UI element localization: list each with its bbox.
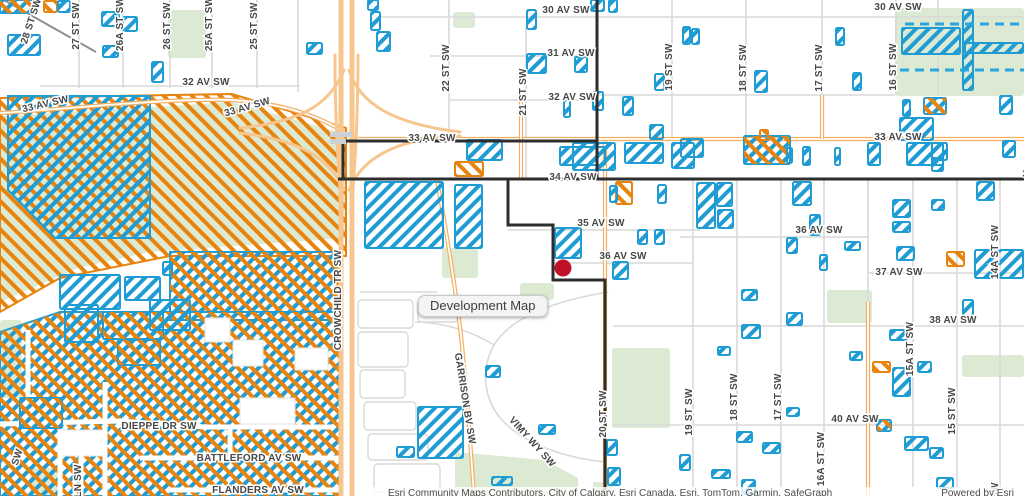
street-label: 20 ST SW <box>598 390 609 438</box>
development-parcel[interactable] <box>820 255 827 270</box>
development-parcel[interactable] <box>573 143 615 170</box>
street-label: 26A ST SW <box>115 0 126 51</box>
development-parcel[interactable] <box>650 125 663 139</box>
street-label: 32 AV SW <box>548 92 596 103</box>
street-label: 31 AV SW <box>547 48 595 59</box>
development-parcel-overlay <box>877 420 891 431</box>
development-parcel[interactable] <box>902 28 960 54</box>
development-parcel[interactable] <box>712 470 730 478</box>
development-parcel[interactable] <box>718 210 733 228</box>
development-parcel[interactable] <box>486 366 500 377</box>
street-label: 30 AV SW <box>542 5 590 16</box>
park <box>827 290 872 323</box>
development-parcel[interactable] <box>65 305 98 342</box>
street-label: 19 ST SW <box>684 388 695 436</box>
street-label: 25 ST SW <box>249 2 260 50</box>
lot-outline <box>360 370 405 398</box>
development-parcel[interactable] <box>371 12 380 30</box>
street-label: 38 AV SW <box>929 315 977 326</box>
development-parcel[interactable] <box>377 32 390 51</box>
development-parcel[interactable] <box>947 252 964 266</box>
development-parcel[interactable] <box>845 242 860 250</box>
lot-outline <box>364 402 416 430</box>
street-label: 18 ST SW <box>729 373 740 421</box>
development-parcel[interactable] <box>836 28 844 45</box>
development-parcel[interactable] <box>658 185 666 203</box>
development-parcel[interactable] <box>150 300 190 330</box>
street-label: 36 AV SW <box>795 225 843 236</box>
development-parcel[interactable] <box>163 262 172 275</box>
development-parcel[interactable] <box>742 325 760 338</box>
development-parcel[interactable] <box>608 468 620 485</box>
development-parcel[interactable] <box>697 183 715 228</box>
street-label: 27 ST SW <box>71 2 82 50</box>
street-label: 15 ST SW <box>947 387 958 435</box>
development-parcel[interactable] <box>718 347 730 355</box>
development-parcel[interactable] <box>903 100 910 116</box>
development-parcel[interactable] <box>44 1 57 12</box>
development-parcel[interactable] <box>787 313 802 325</box>
development-parcel[interactable] <box>787 238 797 253</box>
development-parcel[interactable] <box>638 230 647 244</box>
development-parcel[interactable] <box>1003 141 1015 157</box>
development-parcel[interactable] <box>905 437 928 450</box>
street-label: 15A ST SW <box>905 322 916 377</box>
street-label: 33 AV SW <box>874 132 922 143</box>
development-parcel[interactable] <box>467 140 502 160</box>
development-parcel[interactable] <box>683 27 690 44</box>
development-parcel[interactable] <box>625 143 663 163</box>
park <box>168 10 206 58</box>
street-label: LN SW <box>73 464 84 496</box>
street-label: 14A ST SW <box>990 225 1001 280</box>
street-label: 30 AV SW <box>874 2 922 13</box>
development-parcel[interactable] <box>1000 96 1012 114</box>
development-parcel[interactable] <box>692 29 699 44</box>
attribution-bar: Esri Community Maps Contributors, City o… <box>356 487 1024 496</box>
development-parcel[interactable] <box>555 228 581 258</box>
street-label: 32 AV SW <box>182 77 230 88</box>
development-parcel[interactable] <box>365 182 443 248</box>
lot-outline <box>358 300 413 328</box>
development-parcel[interactable] <box>868 143 880 165</box>
street-label: 17 ST SW <box>773 373 784 421</box>
development-region <box>170 252 342 320</box>
development-parcel[interactable] <box>850 352 862 360</box>
development-parcel[interactable] <box>455 162 483 176</box>
highway-label-placeholder <box>330 139 346 144</box>
park <box>962 355 1024 377</box>
vacant-lot <box>295 348 328 370</box>
development-parcel[interactable] <box>787 148 792 163</box>
map-canvas[interactable]: 30 AV SW30 AV SW31 AV SW32 AV SW32 AV SW… <box>0 0 1024 496</box>
development-parcel[interactable] <box>760 130 768 140</box>
street-label: 34 AV SW <box>549 172 597 183</box>
street-label: CROWCHILD TR SW <box>333 250 344 351</box>
vacant-lot <box>233 340 263 366</box>
street-label: 19 ST SW <box>664 43 675 91</box>
highway-label-placeholder <box>330 132 352 137</box>
development-parcel-overlay <box>924 98 946 114</box>
development-parcel[interactable] <box>152 62 163 82</box>
development-parcel[interactable] <box>125 277 160 300</box>
street-label: 18 ST SW <box>738 44 749 92</box>
map-viewport[interactable]: 30 AV SW30 AV SW31 AV SW32 AV SW32 AV SW… <box>0 0 1024 496</box>
development-parcel[interactable] <box>368 0 378 10</box>
development-parcel[interactable] <box>873 362 890 372</box>
development-map-tooltip: Development Map <box>418 295 548 317</box>
park <box>612 348 670 428</box>
street-label: 16A ST SW <box>816 432 827 487</box>
lot-outline <box>358 332 408 367</box>
attribution-text: Esri Community Maps Contributors, City o… <box>388 487 832 496</box>
development-regions[interactable] <box>0 94 346 496</box>
development-parcel[interactable] <box>455 185 482 248</box>
development-parcel[interactable] <box>527 10 536 29</box>
development-parcel[interactable] <box>539 425 555 434</box>
development-parcel[interactable] <box>918 362 931 372</box>
street-label: 26 ST SW <box>162 2 173 50</box>
local-road <box>415 322 494 345</box>
development-parcel[interactable] <box>717 183 732 206</box>
location-marker-icon[interactable] <box>555 260 572 277</box>
development-parcel[interactable] <box>853 73 861 90</box>
development-parcel[interactable] <box>609 0 617 12</box>
street-label: 33 AV SW <box>408 133 456 144</box>
development-parcel[interactable] <box>397 447 414 457</box>
development-parcel[interactable] <box>893 222 910 232</box>
development-parcel-overlay <box>20 398 62 428</box>
development-parcel[interactable] <box>623 97 633 115</box>
local-road <box>486 292 608 462</box>
vacant-lot <box>240 398 295 424</box>
development-parcel[interactable] <box>932 200 944 210</box>
development-parcel[interactable] <box>763 443 780 453</box>
development-parcel[interactable] <box>755 71 767 92</box>
street-label: 36 AV SW <box>599 251 647 262</box>
development-parcel[interactable] <box>655 230 664 244</box>
development-parcel[interactable] <box>527 54 546 73</box>
development-parcel[interactable] <box>793 182 811 205</box>
powered-by-text: Powered by Esri <box>941 487 1014 496</box>
development-parcel[interactable] <box>897 247 914 260</box>
development-parcel[interactable] <box>930 448 943 458</box>
development-parcel[interactable] <box>60 275 120 309</box>
development-parcel[interactable] <box>681 139 703 157</box>
development-parcel[interactable] <box>418 407 463 458</box>
street-label: 16 ST SW <box>888 43 899 91</box>
vacant-lot <box>205 318 230 342</box>
street-label: 35 AV SW <box>577 218 625 229</box>
development-parcel[interactable] <box>965 43 1023 53</box>
street-label: FLANDERS AV SW <box>212 485 304 496</box>
development-parcel[interactable] <box>977 182 994 200</box>
street-label: 25A ST SW <box>204 0 215 51</box>
development-parcel[interactable] <box>655 74 664 90</box>
development-parcel[interactable] <box>787 408 799 416</box>
park <box>453 12 475 28</box>
street-label: BATTLEFORD AV SW <box>197 453 302 464</box>
street-label: 37 AV SW <box>875 267 923 278</box>
development-parcel[interactable] <box>803 147 810 165</box>
development-parcel[interactable] <box>607 440 617 455</box>
development-parcel[interactable] <box>737 432 752 442</box>
street-label: 17 ST SW <box>814 44 825 92</box>
development-parcel[interactable] <box>610 186 617 202</box>
development-parcel[interactable] <box>893 200 910 217</box>
development-parcel[interactable] <box>616 182 632 204</box>
development-parcel[interactable] <box>835 148 840 165</box>
development-parcel[interactable] <box>58 1 70 12</box>
street-label: DIEPPE DR SW <box>121 421 197 432</box>
development-parcel[interactable] <box>492 477 512 485</box>
street-label: 21 ST SW <box>518 68 529 116</box>
development-parcel[interactable] <box>932 143 947 160</box>
development-parcel[interactable] <box>307 43 322 54</box>
development-parcel[interactable] <box>613 262 628 279</box>
street-label: 22 ST SW <box>441 44 452 92</box>
development-parcel-overlay <box>118 340 160 365</box>
street-label: 40 AV SW <box>831 414 879 425</box>
development-parcel[interactable] <box>742 290 757 300</box>
development-parcel[interactable] <box>680 455 690 470</box>
development-parcel[interactable] <box>575 57 587 72</box>
